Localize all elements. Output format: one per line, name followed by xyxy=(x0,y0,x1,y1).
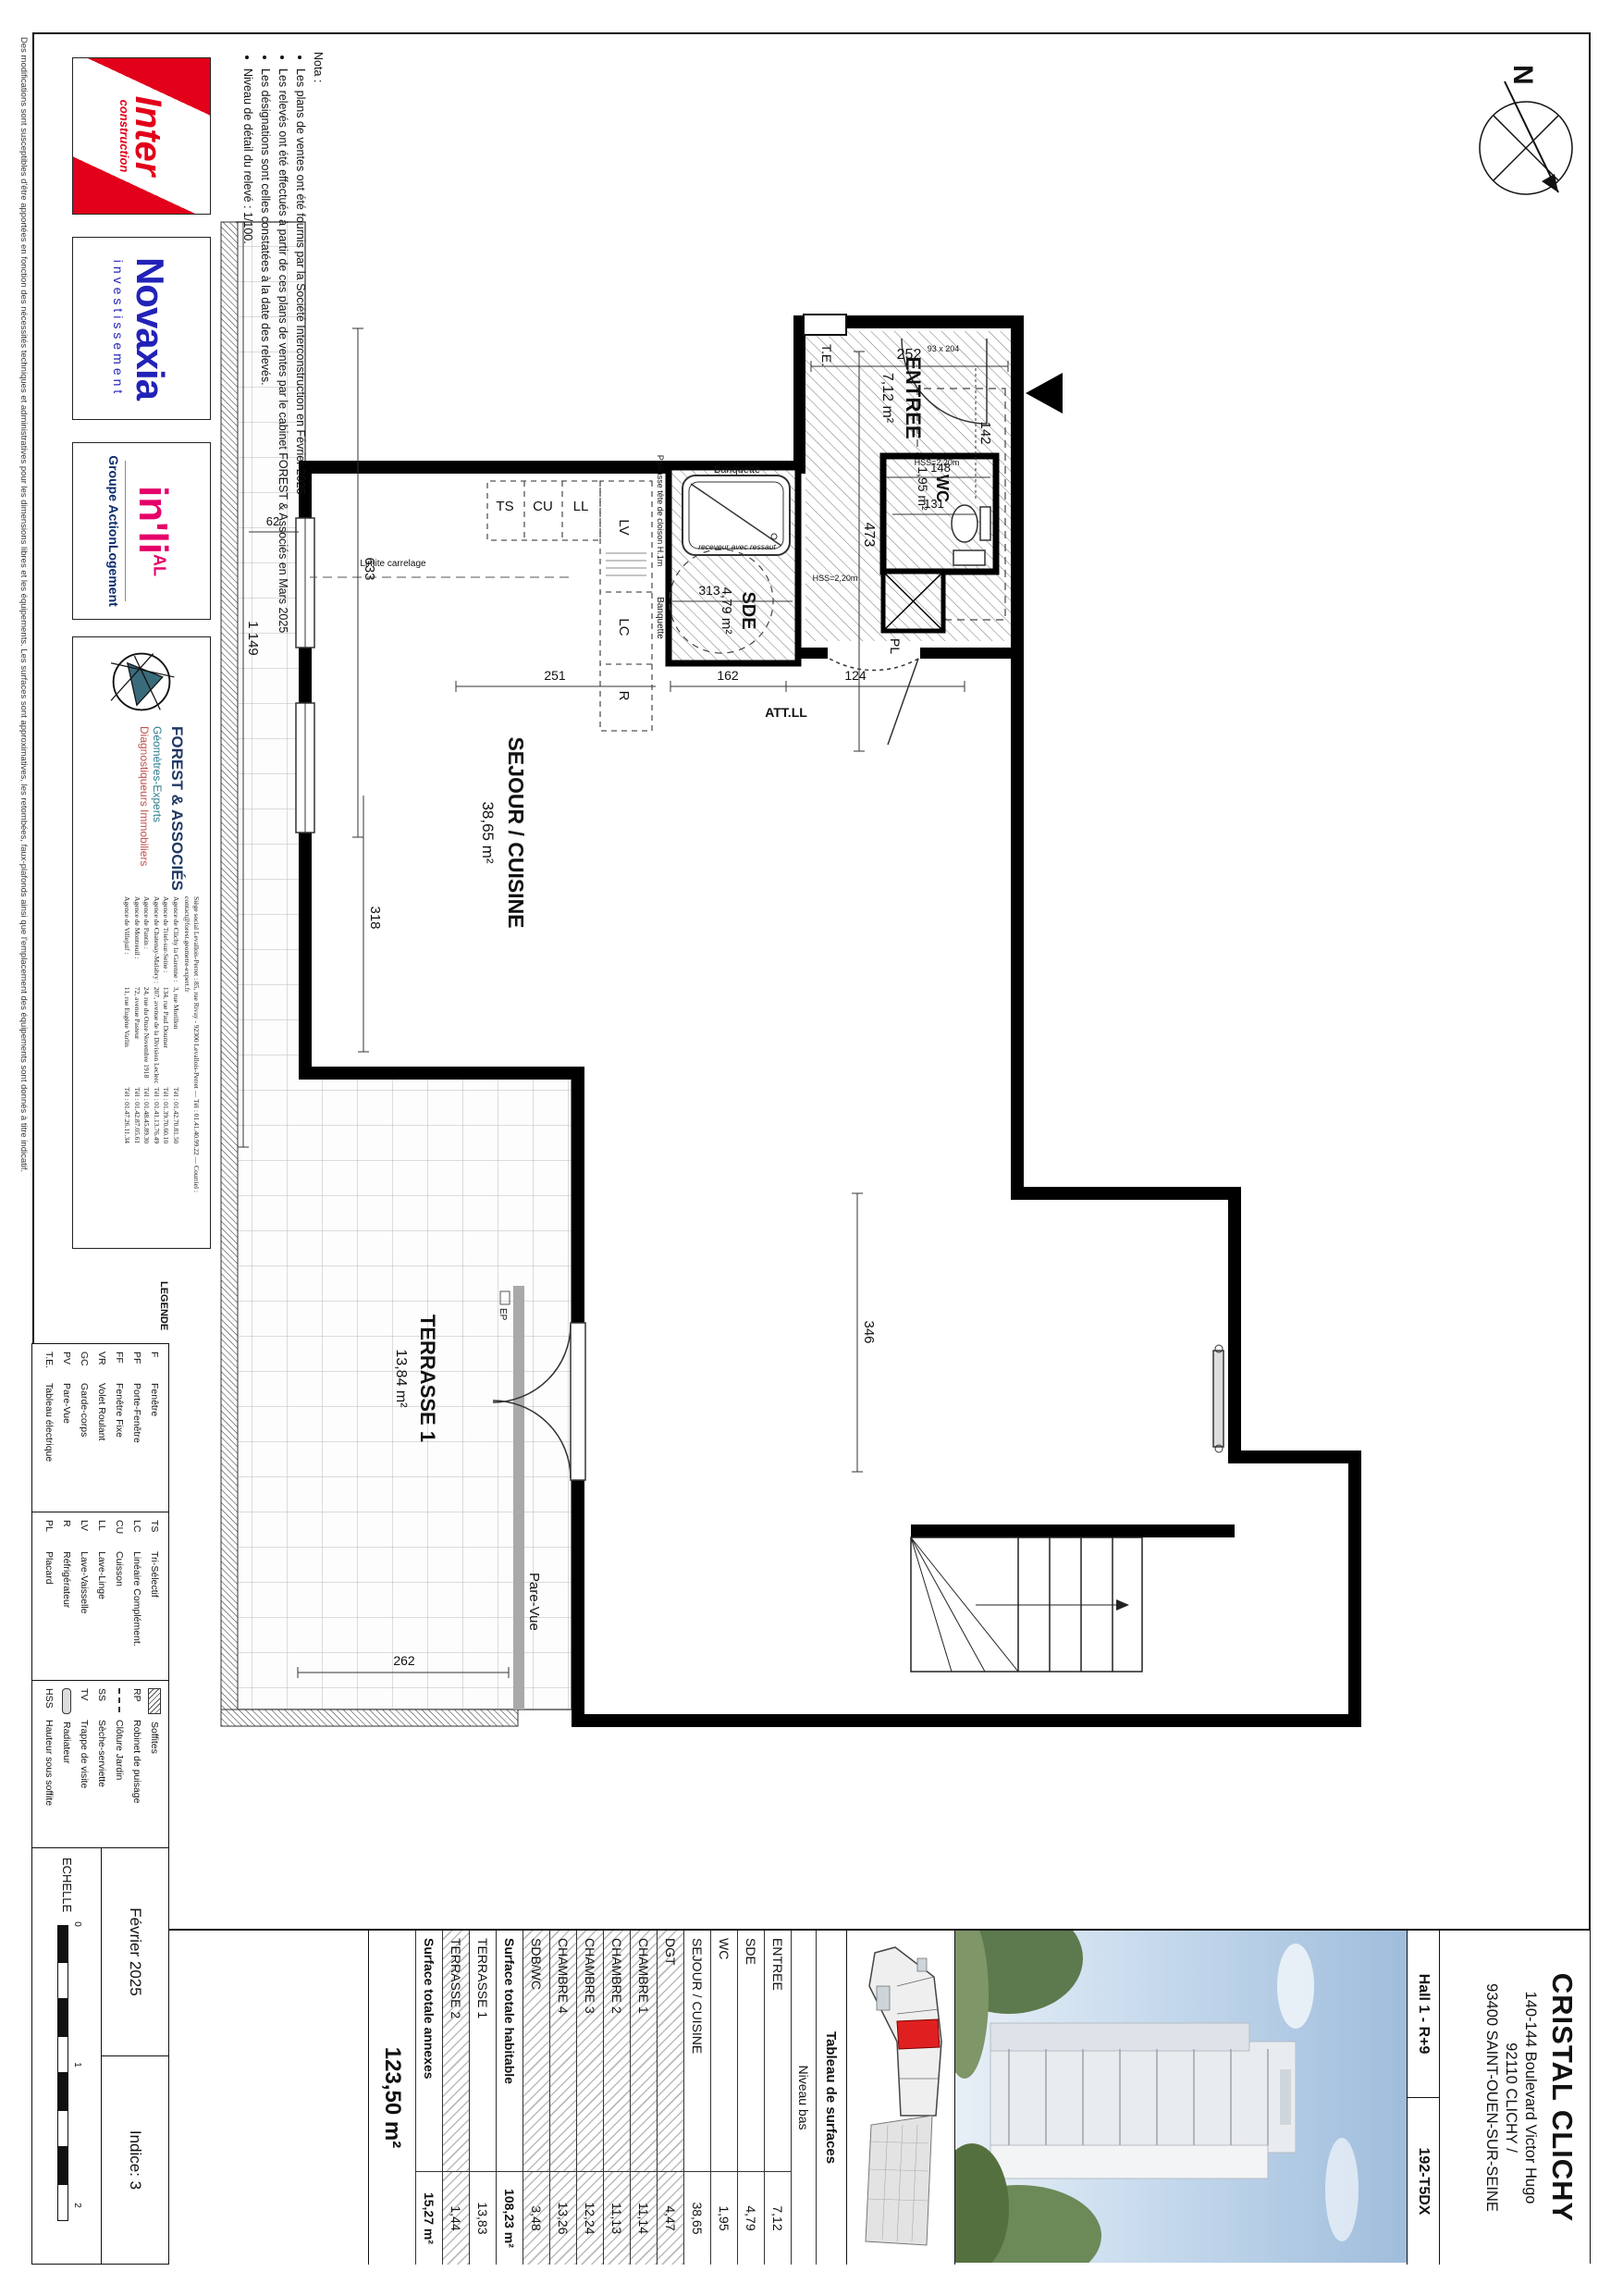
table-row: SDB/WC3,48 xyxy=(523,1931,549,2265)
svg-text:148: 148 xyxy=(930,461,951,475)
svg-text:LL: LL xyxy=(573,499,589,514)
svg-text:633: 633 xyxy=(362,557,377,580)
room-label-sde: SDE xyxy=(738,591,758,629)
svg-text:TS: TS xyxy=(496,499,513,514)
legend-box: FFenêtre PFPorte-Fenêtre FFFenêtre Fixe … xyxy=(31,1343,169,1849)
svg-text:473: 473 xyxy=(861,523,877,548)
room-label-terrasse: TERRASSE 1 xyxy=(416,1315,439,1442)
key-plan xyxy=(846,1931,954,2265)
cloture-dash-icon xyxy=(119,1688,121,1712)
novaxia-logo: Novaxia investissement xyxy=(72,237,211,420)
te-label: T.E. xyxy=(819,344,834,366)
building-photo xyxy=(954,1931,1407,2265)
svg-text:93 x 204: 93 x 204 xyxy=(928,344,960,353)
terrace-guardrail-right xyxy=(221,1710,518,1726)
svg-text:Paillasse tête de cloison H.1m: Paillasse tête de cloison H.1m xyxy=(656,455,665,567)
table-row: CHAMBRE 413,26 xyxy=(549,1931,576,2265)
legend-col-1: FFenêtre PFPorte-Fenêtre FFFenêtre Fixe … xyxy=(32,1344,168,1512)
svg-text:ATT.LL: ATT.LL xyxy=(765,705,807,720)
svg-text:N: N xyxy=(1507,65,1538,85)
svg-text:receveur avec ressaut: receveur avec ressaut xyxy=(698,542,776,551)
project-address-3: 93400 SAINT-OUEN-SUR-SEINE xyxy=(1482,1931,1501,2265)
forest-logo-icon xyxy=(73,637,210,726)
room-label-entree: ENTREE xyxy=(902,356,925,438)
terrace-guardrail xyxy=(221,222,238,1726)
svg-text:CU: CU xyxy=(533,499,553,514)
window-pf-2 xyxy=(296,703,314,833)
svg-text:142: 142 xyxy=(977,421,993,444)
table-row: CHAMBRE 211,13 xyxy=(603,1931,630,2265)
scale-bar: 0 1 2 xyxy=(57,1925,68,2221)
plan-sheet: N Pare-Vue EP xyxy=(0,0,1623,2296)
svg-text:313: 313 xyxy=(698,583,720,598)
room-label-sejour: SEJOUR / CUISINE xyxy=(504,736,528,928)
key-plan-highlight-unit xyxy=(897,2019,940,2049)
forest-name: FOREST & ASSOCIÉS xyxy=(167,726,186,893)
table-row: ENTREE7,12 xyxy=(764,1931,791,2265)
table-row: SEJOUR / CUISINE38,65 xyxy=(683,1931,710,2265)
hall-label: Hall 1 - R+9 xyxy=(1408,1931,1439,2097)
svg-text:124: 124 xyxy=(844,668,867,683)
table-header: Tableau de surfaces xyxy=(816,1931,846,2265)
svg-text:7,12 m²: 7,12 m² xyxy=(879,373,895,424)
inter-construction-logo: Inter construction xyxy=(72,57,211,215)
north-compass-icon: N xyxy=(1480,65,1572,194)
table-row: CHAMBRE 111,14 xyxy=(630,1931,657,2265)
screenshot-canvas: N Pare-Vue EP xyxy=(0,0,1623,2296)
building-silhouette xyxy=(990,2023,1296,2179)
al-badge-icon: AL xyxy=(151,554,169,576)
legend-title: LEGENDE xyxy=(158,1281,169,1330)
legend-col-3: Soffites RPRobinet de puisage Clôture Ja… xyxy=(32,1680,168,1848)
stamp-block: Février 2025 Indice: 3 ECHELLE 0 1 2 xyxy=(31,1847,169,2265)
svg-text:Banquette: Banquette xyxy=(655,597,665,639)
svg-text:EP: EP xyxy=(498,1308,508,1321)
svg-text:LC: LC xyxy=(616,618,632,636)
total-surface: 123,50 m² xyxy=(368,1931,415,2265)
table-subheader: Niveau bas xyxy=(791,1931,816,2265)
total-habitable-row: Surface totale habitable108,23 m² xyxy=(496,1931,523,2265)
svg-text:346: 346 xyxy=(861,1320,877,1343)
title-block: CRISTAL CLICHY 140-144 Boulevard Victor … xyxy=(169,1929,1590,2265)
table-row: CHAMBRE 312,24 xyxy=(576,1931,603,2265)
pare-vue-screen xyxy=(513,1286,524,1710)
legend-col-2: TSTri-Sélectif LCLinéaire Complément. CU… xyxy=(32,1512,168,1680)
svg-text:262: 262 xyxy=(393,1653,415,1668)
nota-block: Nota : Les plans de ventes ont été fourn… xyxy=(237,52,325,644)
svg-text:318: 318 xyxy=(367,906,383,929)
svg-text:LV: LV xyxy=(616,519,632,535)
svg-text:162: 162 xyxy=(717,668,739,683)
table-row: SDE4,79 xyxy=(737,1931,764,2265)
project-name: CRISTAL CLICHY xyxy=(1545,1931,1579,2265)
indice-label: Indice: 3 xyxy=(102,2055,168,2264)
closet-pl xyxy=(883,572,943,631)
svg-text:Banquette: Banquette xyxy=(714,464,760,475)
inter-logo-text: Inter xyxy=(132,96,166,177)
table-row: WC1,95 xyxy=(710,1931,737,2265)
table-row: TERRASSE 113,83 xyxy=(469,1931,496,2265)
radiator-icon xyxy=(1213,1345,1223,1452)
svg-text:252: 252 xyxy=(897,347,922,363)
inli-logo: in'liAL Groupe ActionLogement xyxy=(72,442,211,620)
forest-associes-block: FOREST & ASSOCIÉS Géomètres-Experts Diag… xyxy=(72,636,211,1249)
total-annexes-row: Surface totale annexes15,27 m² xyxy=(415,1931,442,2265)
lot-number: 192-T5DX xyxy=(1408,2097,1439,2265)
project-title-box: CRISTAL CLICHY 140-144 Boulevard Victor … xyxy=(1439,1931,1590,2265)
table-row: TERRASSE 21,44 xyxy=(442,1931,469,2265)
radiator-legend-icon xyxy=(63,1688,72,1714)
surface-table: Tableau de surfaces Niveau bas ENTREE7,1… xyxy=(368,1931,846,2265)
soffites-hatch-icon xyxy=(149,1688,162,1714)
svg-text:PL: PL xyxy=(888,638,903,654)
disclaimer-text: Des modifications sont susceptibles d'êt… xyxy=(18,37,29,2165)
date-label: Février 2025 xyxy=(102,1848,168,2055)
svg-text:4,79 m²: 4,79 m² xyxy=(719,587,734,635)
project-address-2: 92110 CLICHY / xyxy=(1501,1931,1520,2265)
forest-addresses: Siège social Levallois-Perret : 85, rue … xyxy=(73,893,210,1248)
scale-label: ECHELLE xyxy=(61,1858,75,1912)
svg-text:251: 251 xyxy=(544,668,566,683)
svg-text:38,65 m²: 38,65 m² xyxy=(479,801,497,863)
svg-text:HSS=2,20m: HSS=2,20m xyxy=(813,574,858,583)
svg-text:13,84 m²: 13,84 m² xyxy=(393,1349,409,1408)
svg-text:R: R xyxy=(616,691,632,701)
te-box xyxy=(804,315,846,335)
entrance-arrow-icon xyxy=(1026,373,1063,414)
project-address-1: 140-144 Boulevard Victor Hugo xyxy=(1520,1931,1540,2265)
table-row: DGT4,47 xyxy=(657,1931,683,2265)
svg-text:131: 131 xyxy=(924,497,944,511)
pare-vue-label: Pare-Vue xyxy=(526,1573,542,1631)
